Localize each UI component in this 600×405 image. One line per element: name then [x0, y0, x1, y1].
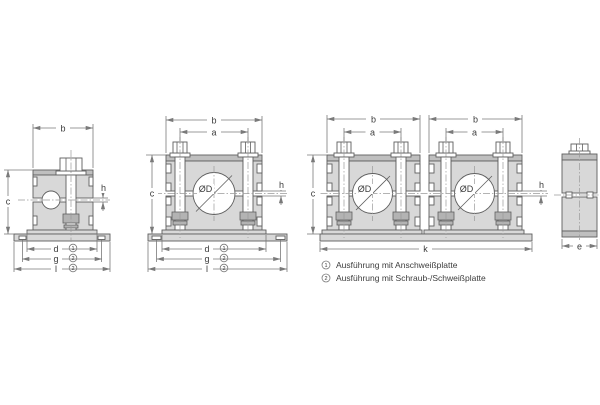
dim-label-a: a — [472, 128, 477, 138]
weld-plate — [27, 230, 97, 234]
dim-label-c: c — [150, 189, 155, 199]
svg-text:2: 2 — [222, 266, 225, 272]
view-front-single-small: b c h d g l 1 2 2 — [2, 122, 110, 274]
common-base-plate — [320, 234, 532, 241]
dim-label-g: g — [204, 254, 209, 264]
slot-hole — [98, 236, 105, 240]
dimensions: e — [562, 239, 597, 252]
dim-label-h: h — [101, 183, 106, 193]
dim-label-l: l — [55, 264, 57, 274]
screw-plate — [14, 234, 110, 241]
twin-unit-1 — [327, 142, 420, 230]
svg-text:1: 1 — [222, 246, 225, 252]
note-marker-2: 2 — [322, 274, 330, 282]
dim-label-e: e — [577, 242, 582, 252]
dim-label-c: c — [6, 197, 11, 207]
svg-text:1: 1 — [324, 263, 327, 269]
slot-hole — [276, 236, 285, 240]
dim-label-b: b — [371, 115, 376, 125]
dim-label-diameter: ØD — [460, 184, 474, 194]
dim-label-b: b — [211, 116, 216, 126]
technical-drawing-pipe-clamps: b c h d g l 1 2 2 — [0, 0, 600, 400]
note-marker-2: 2 — [69, 254, 77, 262]
dim-label-c: c — [311, 189, 316, 199]
slot-hole — [152, 236, 161, 240]
note-marker-2: 2 — [220, 264, 228, 272]
svg-text:2: 2 — [324, 276, 327, 282]
weld-plate — [322, 230, 422, 234]
view-side: e — [554, 138, 600, 252]
dim-label-d: d — [53, 244, 58, 254]
legend-text-1: Ausführung mit Anschweißplatte — [336, 260, 458, 270]
clamp-geometry — [14, 158, 110, 241]
note-marker-1: 1 — [220, 244, 228, 252]
note-marker-2: 2 — [220, 254, 228, 262]
view-front-twin: b b a a c ØD ØD h k — [307, 113, 548, 254]
dim-label-l: l — [206, 264, 208, 274]
dim-label-g: g — [53, 254, 58, 264]
dim-label-d: d — [204, 244, 209, 254]
twin-unit-2 — [429, 142, 522, 230]
dim-label-b: b — [473, 115, 478, 125]
dim-label-a: a — [211, 128, 216, 138]
legend: 1 Ausführung mit Anschweißplatte 2 Ausfü… — [322, 260, 486, 283]
svg-text:2: 2 — [222, 256, 225, 262]
legend-row-2: 2 Ausführung mit Schraub-/Schweißplatte — [322, 273, 486, 283]
note-marker-1: 1 — [322, 261, 330, 269]
dim-label-diameter: ØD — [199, 184, 213, 194]
dim-label-h: h — [279, 180, 284, 190]
slot-hole — [19, 236, 26, 240]
dim-label-k: k — [423, 244, 428, 254]
note-marker-1: 1 — [69, 244, 77, 252]
note-marker-2: 2 — [69, 264, 77, 272]
legend-text-2: Ausführung mit Schraub-/Schweißplatte — [336, 273, 486, 283]
svg-text:1: 1 — [71, 246, 74, 252]
weld-plate — [162, 230, 266, 234]
clamp-geometry — [148, 142, 287, 241]
view-front-single-large: b a c ØD h d g l 1 2 2 — [146, 114, 288, 274]
weld-plate — [424, 230, 524, 234]
svg-text:2: 2 — [71, 256, 74, 262]
svg-text:2: 2 — [71, 266, 74, 272]
dim-label-b: b — [60, 124, 65, 134]
legend-row-1: 1 Ausführung mit Anschweißplatte — [322, 260, 458, 270]
dim-label-a: a — [370, 128, 375, 138]
dim-label-h: h — [539, 180, 544, 190]
clamp-body-upper — [33, 175, 93, 198]
common-plate-assembly — [320, 230, 532, 241]
dim-label-diameter: ØD — [358, 184, 372, 194]
